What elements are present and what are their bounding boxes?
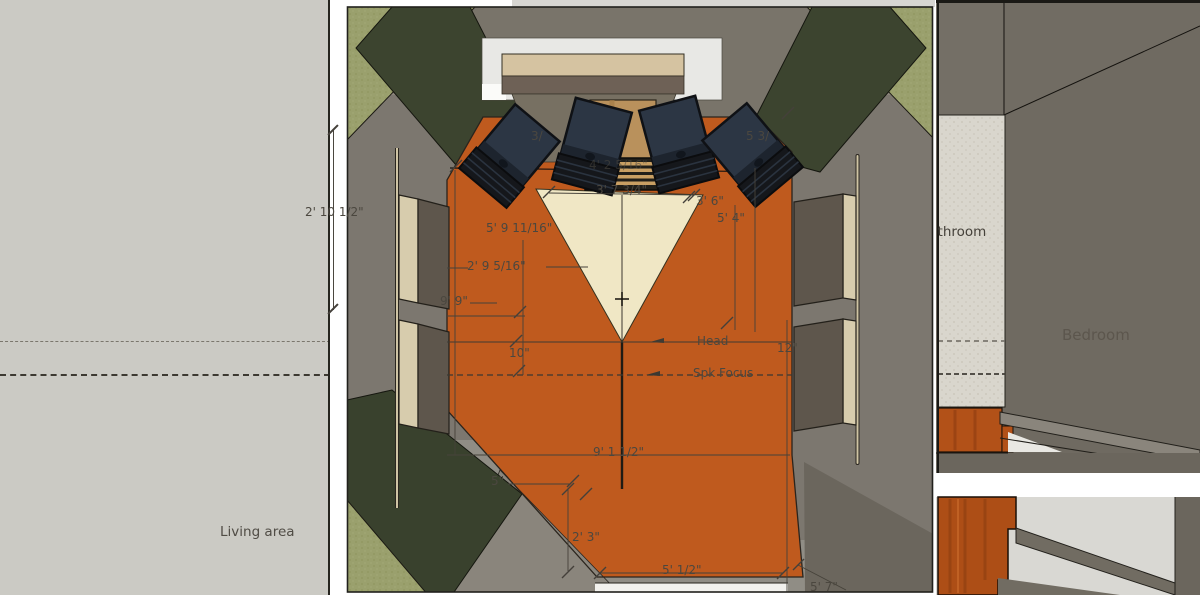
dim-bottom-right: 5' 7" <box>810 580 838 594</box>
dim-frag-left: 3/ <box>531 129 543 143</box>
dim-panel-gap: 9' 9" <box>440 294 468 308</box>
dim-room-width: 9' 1 1/2" <box>593 445 644 459</box>
dim-five: 5" <box>491 474 504 488</box>
dim-bottom-width: 5' 1/2" <box>662 563 702 577</box>
floor-band <box>936 453 1200 473</box>
dim-frag-right: 5 3/ <box>746 129 769 143</box>
dim-ten: 10" <box>509 346 530 360</box>
sketchup-window: Living area 2' 10 1/2" <box>0 0 1200 595</box>
room-plan-scene[interactable] <box>345 0 935 595</box>
head-label: Head <box>697 334 728 348</box>
wall-strip <box>1175 497 1200 595</box>
spk-focus-section-line <box>0 374 330 376</box>
bathroom-label-clip: Bathroom <box>938 224 1004 242</box>
dim-left-wall-offset: 2' 10 1/2" <box>305 205 364 219</box>
viewport-living-area[interactable] <box>0 0 330 595</box>
dim-right-upper: 3' 6" <box>696 194 724 208</box>
viewport-stairs[interactable] <box>936 488 1200 595</box>
desk-front <box>502 76 684 94</box>
dim-left-mid: 2' 9 5/16" <box>467 259 526 273</box>
page-strip <box>512 0 935 7</box>
dim-bottom-height: 2' 3" <box>572 530 600 544</box>
viewport-border <box>936 0 1200 3</box>
stairs-scene[interactable] <box>936 488 1200 595</box>
dim-twelve: 12" <box>777 341 798 355</box>
dimension-line-vertical <box>333 130 334 310</box>
bathroom-tile-wall[interactable] <box>938 115 1005 407</box>
bathroom-label: Bathroom <box>938 224 986 240</box>
wall-corner <box>936 0 1005 115</box>
viewport-room-plan[interactable] <box>345 0 935 595</box>
panel-divider <box>328 0 330 595</box>
dim-desk-width: 4' 2 5/16" <box>589 158 648 172</box>
desk-top[interactable] <box>502 54 684 76</box>
dim-right-side: 5' 4" <box>717 211 745 225</box>
bedroom-label: Bedroom <box>1062 326 1130 344</box>
spk-focus-label: Spk Focus <box>693 366 753 380</box>
head-section-line <box>0 341 330 342</box>
dim-left-side: 5' 9 11/16" <box>486 221 552 235</box>
living-area-label: Living area <box>220 524 295 540</box>
dim-triangle-base: 3' 7 3/4" <box>596 183 647 197</box>
